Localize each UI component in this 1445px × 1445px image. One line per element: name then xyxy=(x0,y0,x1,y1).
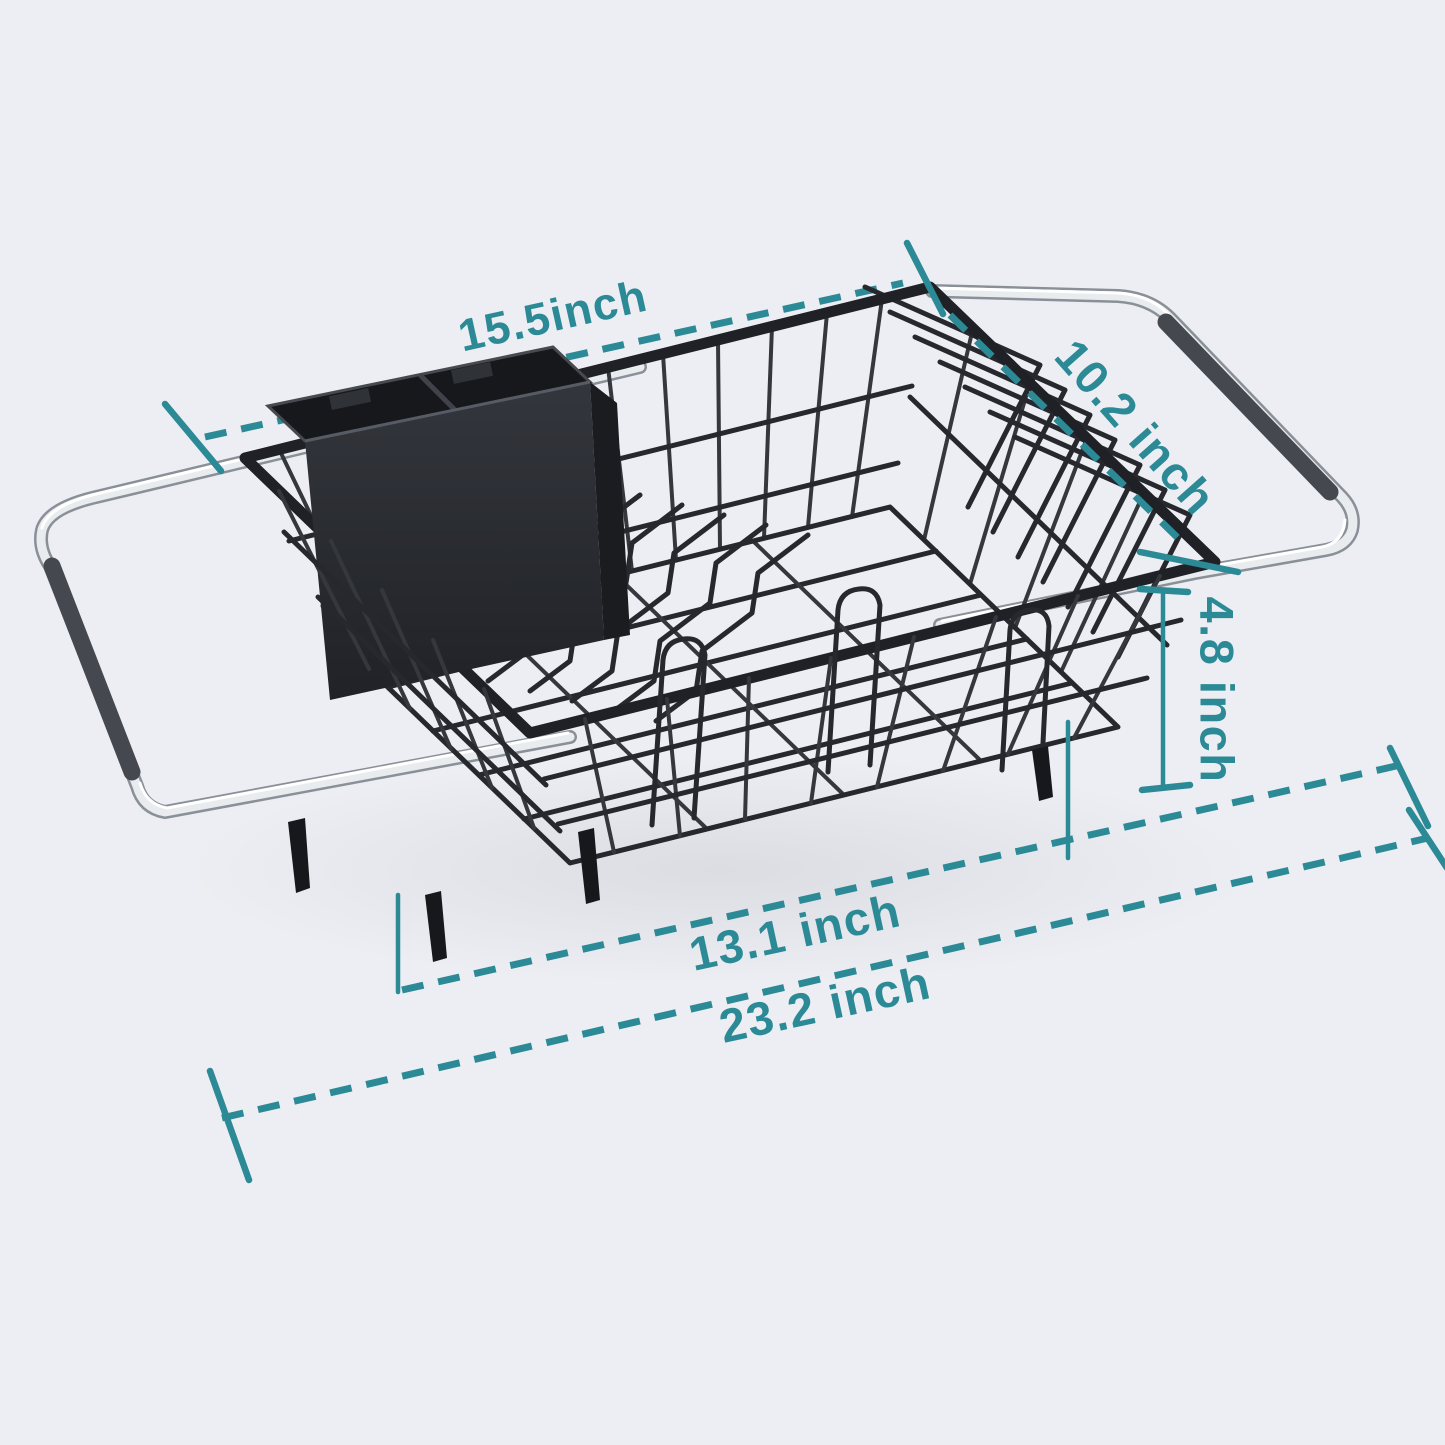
dim-tick xyxy=(907,243,943,314)
dim-tick xyxy=(210,1071,249,1180)
left-arm-rubber-grip xyxy=(52,566,132,772)
dim-label-height: 4.8 inch xyxy=(1190,596,1245,783)
utensil-holder xyxy=(268,347,630,700)
product-dimension-diagram: 15.5inch 10.2 inch 4.8 inch 13.1 inch 23… xyxy=(0,0,1445,1445)
dim-tick xyxy=(1140,589,1188,592)
dim-tick xyxy=(1142,785,1190,790)
